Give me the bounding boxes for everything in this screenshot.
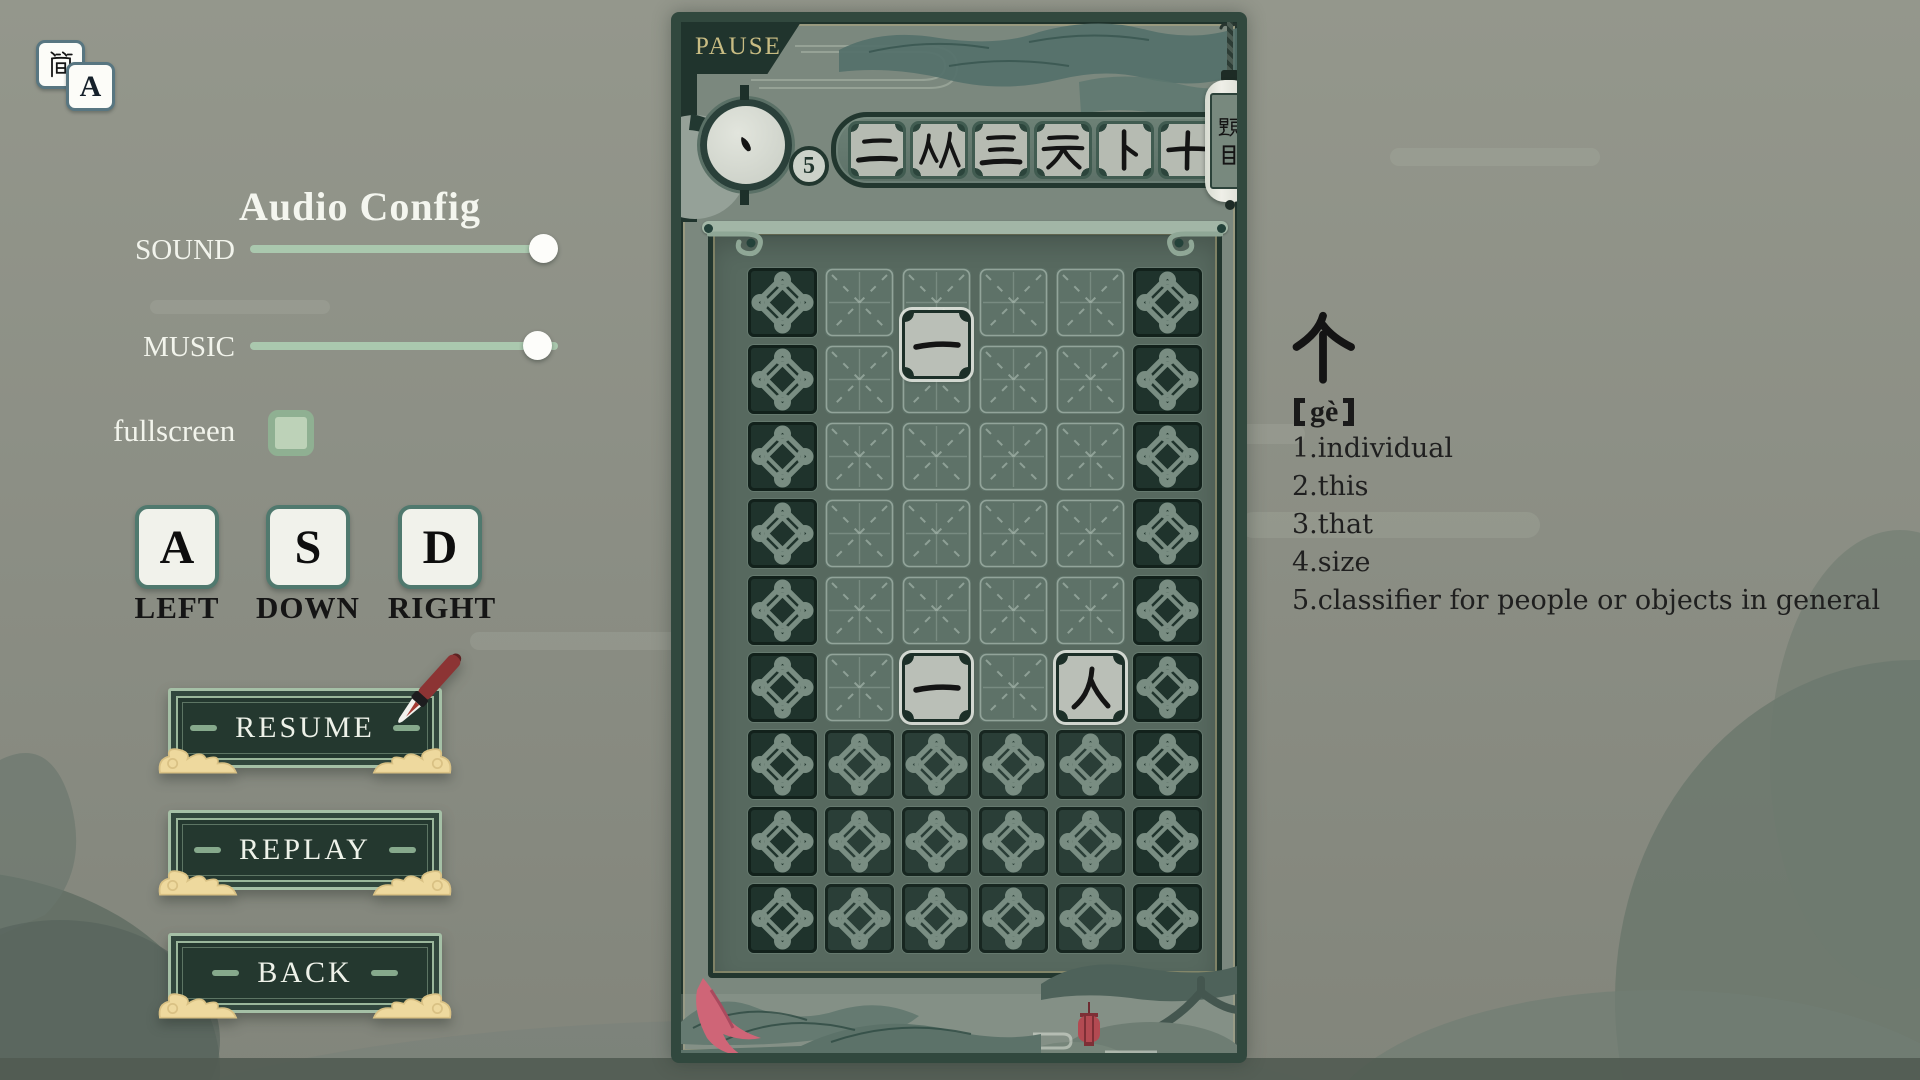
grid-cell-knot (748, 807, 817, 876)
grid-cell-knot (825, 884, 894, 953)
page-title: Audio Config (160, 183, 560, 230)
keycap-d-action: RIGHT (377, 590, 507, 626)
grid-cell-empty (825, 653, 894, 722)
grid-cell-knot (748, 653, 817, 722)
keycap-a-action: LEFT (112, 590, 242, 626)
cloud-ornament (154, 745, 242, 775)
topic-scroll (1205, 80, 1247, 202)
sound-slider-thumb[interactable] (529, 234, 558, 263)
fullscreen-checkbox[interactable] (268, 410, 314, 456)
dash-ornament (371, 970, 398, 976)
grid-cell-empty (902, 422, 971, 491)
grid-cell-knot (748, 730, 817, 799)
fullscreen-label: fullscreen (113, 413, 235, 449)
grid-cell-knot (748, 268, 817, 337)
grid-cell-knot (1133, 730, 1202, 799)
grid-cell-knot (902, 807, 971, 876)
grid-cell-knot (979, 884, 1048, 953)
grid-cell-knot (1133, 884, 1202, 953)
upcoming-tile (848, 121, 906, 179)
language-latin-label: A (80, 70, 102, 104)
cloud-ornament (154, 990, 242, 1020)
definition-pinyin: gè (1294, 395, 1354, 429)
placed-tile (902, 653, 971, 722)
sound-label: SOUND (60, 234, 235, 267)
language-toggle-button[interactable]: A (30, 34, 120, 114)
grid-cell-empty (825, 576, 894, 645)
music-slider-thumb[interactable] (523, 331, 552, 360)
grid-cell-knot (748, 499, 817, 568)
meaning-item: 4.size (1292, 544, 1880, 582)
pinyin-text: gè (1310, 395, 1338, 429)
dash-ornament (389, 847, 416, 853)
grid-cell-empty (825, 345, 894, 414)
topic-scroll-label (1210, 93, 1247, 189)
current-stroke-medallion (700, 99, 792, 191)
music-label: MUSIC (60, 331, 235, 364)
grid-cell-knot (1133, 807, 1202, 876)
back-button-label: BACK (257, 956, 352, 990)
bar-hook-ornament (1163, 230, 1223, 258)
grid-cell-empty (825, 268, 894, 337)
back-button[interactable]: BACK (168, 933, 442, 1013)
falling-tile (902, 310, 971, 379)
meaning-item: 2.this (1292, 468, 1880, 506)
definition-character (1284, 308, 1368, 392)
keycap-s[interactable]: S (266, 505, 350, 589)
grid-cell-knot (825, 807, 894, 876)
scroll-knob (1225, 200, 1235, 210)
grid-cell-empty (979, 653, 1048, 722)
grid-cell-knot (1133, 268, 1202, 337)
cloud-ornament (368, 745, 456, 775)
cloud-ornament (154, 867, 242, 897)
keycap-s-action: DOWN (243, 590, 373, 626)
grid-cell-knot (1056, 884, 1125, 953)
grid-cell-knot (1133, 422, 1202, 491)
bar-end-dot (704, 224, 713, 233)
cloud-ornament (368, 990, 456, 1020)
keycap-d[interactable]: D (398, 505, 482, 589)
keycap-a[interactable]: A (135, 505, 219, 589)
grid-cell-knot (902, 884, 971, 953)
grid-cell-knot (979, 807, 1048, 876)
grid-cell-empty (1056, 268, 1125, 337)
dash-ornament (212, 970, 239, 976)
grid-cell-knot (1133, 499, 1202, 568)
meaning-item: 3.that (1292, 506, 1880, 544)
tile-grid (748, 268, 1202, 953)
placed-tile (1056, 653, 1125, 722)
grid-cell-empty (1056, 345, 1125, 414)
grid-cell-knot (825, 730, 894, 799)
keycap-a-label: A (160, 520, 195, 575)
meaning-item: 1.individual (1292, 430, 1880, 468)
grid-cell-empty (902, 576, 971, 645)
definition-character-glyph (1284, 308, 1368, 386)
grid-cell-empty (1056, 576, 1125, 645)
app-root: A Audio Config SOUND MUSIC fullscreen A … (0, 0, 1920, 1080)
queue-count: 5 (803, 153, 815, 180)
grid-cell-empty (979, 422, 1048, 491)
sound-slider-track[interactable] (250, 245, 558, 253)
bar-end-dot (1217, 224, 1226, 233)
playfield (708, 228, 1222, 978)
cloud-ornament (368, 867, 456, 897)
dash-ornament (393, 725, 420, 731)
upcoming-tile (1096, 121, 1154, 179)
upcoming-tile (910, 121, 968, 179)
music-slider-track[interactable] (250, 342, 558, 350)
grid-cell-knot (748, 422, 817, 491)
grid-cell-empty (902, 499, 971, 568)
upcoming-tiles (848, 121, 1216, 179)
upcoming-tile (1034, 121, 1092, 179)
pause-status-banner: PAUSE (681, 22, 801, 74)
game-board: PAUSE 5 (671, 12, 1247, 1063)
grid-cell-empty (825, 499, 894, 568)
grid-cell-empty (979, 576, 1048, 645)
grid-cell-empty (979, 499, 1048, 568)
upcoming-tiles-rack (831, 112, 1227, 188)
queue-count-badge: 5 (789, 146, 829, 186)
grid-cell-knot (748, 884, 817, 953)
grid-cell-empty (825, 422, 894, 491)
grid-cell-knot (1056, 807, 1125, 876)
definition-meanings: 1.individual2.this3.that4.size5.classifi… (1292, 430, 1880, 620)
replay-button[interactable]: REPLAY (168, 810, 442, 890)
grid-cell-knot (902, 730, 971, 799)
scroll-rope (1227, 22, 1233, 76)
resume-button[interactable]: RESUME (168, 688, 442, 768)
grid-cell-knot (1133, 576, 1202, 645)
lenticular-bracket-left (1294, 398, 1305, 426)
meaning-item: 5.classifier for people or objects in ge… (1292, 582, 1880, 620)
grid-cell-knot (979, 730, 1048, 799)
grid-cell-empty (1056, 422, 1125, 491)
lenticular-bracket-right (1343, 398, 1354, 426)
grid-cell-knot (748, 345, 817, 414)
bar-hook-ornament (707, 230, 767, 258)
language-latin-badge: A (66, 62, 115, 111)
grid-cell-knot (1133, 345, 1202, 414)
keycap-s-label: S (295, 520, 322, 575)
grid-cell-knot (748, 576, 817, 645)
dash-ornament (194, 847, 221, 853)
keycap-d-label: D (423, 520, 458, 575)
dash-ornament (190, 725, 217, 731)
grid-cell-empty (979, 345, 1048, 414)
replay-button-label: REPLAY (239, 833, 371, 867)
grid-cell-empty (1056, 499, 1125, 568)
grid-cell-knot (1056, 730, 1125, 799)
grid-cell-knot (1133, 653, 1202, 722)
playfield-top-bar (702, 221, 1228, 234)
pause-label: PAUSE (695, 33, 782, 60)
current-stroke-glyph (729, 128, 763, 162)
upcoming-tile (972, 121, 1030, 179)
grid-cell-empty (979, 268, 1048, 337)
resume-button-label: RESUME (235, 711, 375, 745)
